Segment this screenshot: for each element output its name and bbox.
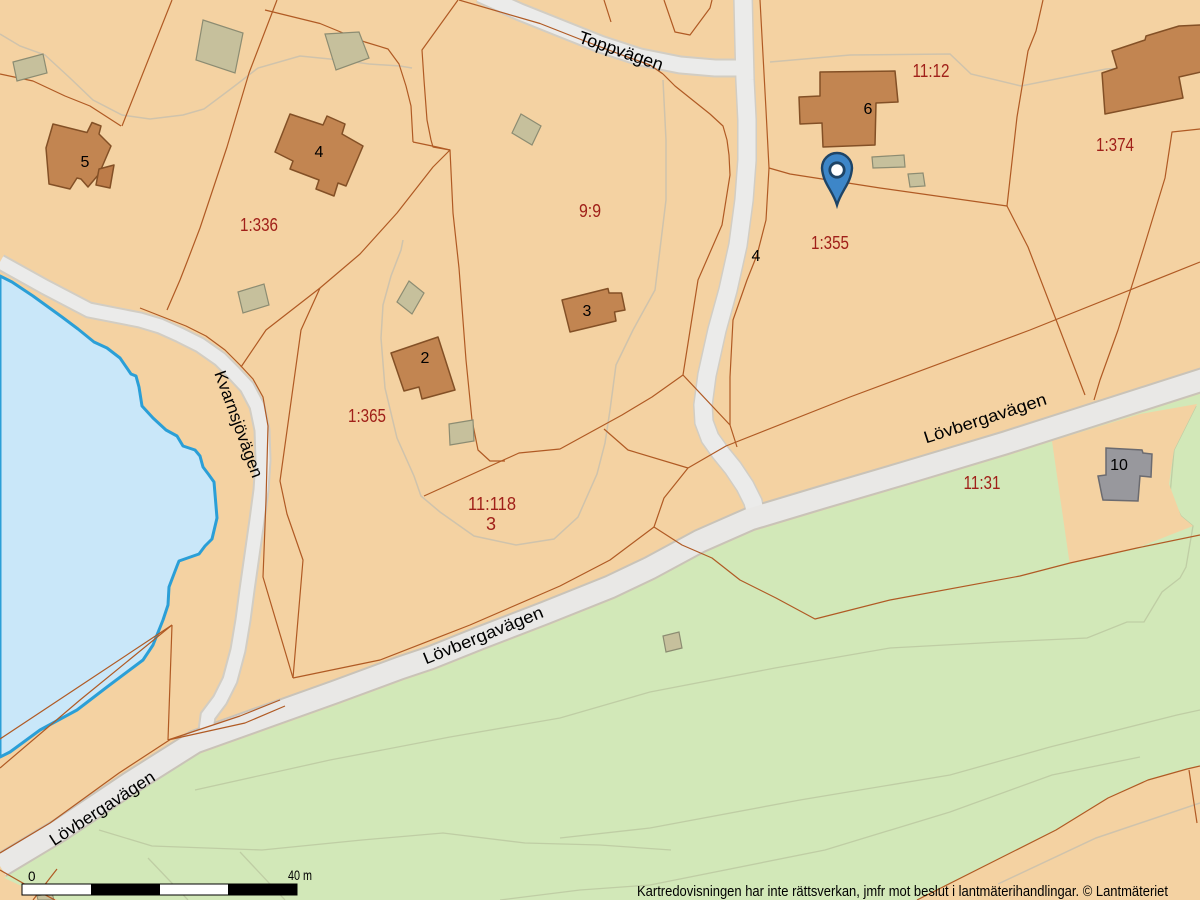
svg-text:3: 3: [583, 303, 592, 320]
svg-text:6: 6: [864, 101, 873, 118]
svg-text:4: 4: [752, 248, 761, 265]
svg-text:1:374: 1:374: [1096, 135, 1134, 155]
svg-text:1:355: 1:355: [811, 233, 849, 253]
svg-text:40 m: 40 m: [288, 868, 312, 883]
svg-text:3: 3: [486, 514, 496, 534]
svg-text:10: 10: [1110, 457, 1128, 474]
svg-text:9:9: 9:9: [579, 201, 601, 221]
svg-text:Kartredovisningen har inte rät: Kartredovisningen har inte rättsverkan, …: [637, 883, 1169, 900]
svg-text:11:118: 11:118: [468, 494, 516, 514]
svg-text:5: 5: [81, 154, 90, 171]
svg-text:1:336: 1:336: [240, 215, 278, 235]
svg-text:11:31: 11:31: [964, 473, 1001, 493]
svg-text:11:12: 11:12: [913, 61, 950, 81]
svg-text:4: 4: [315, 144, 324, 161]
svg-text:1:365: 1:365: [348, 406, 386, 426]
svg-text:2: 2: [421, 350, 430, 367]
svg-text:0: 0: [28, 869, 36, 884]
